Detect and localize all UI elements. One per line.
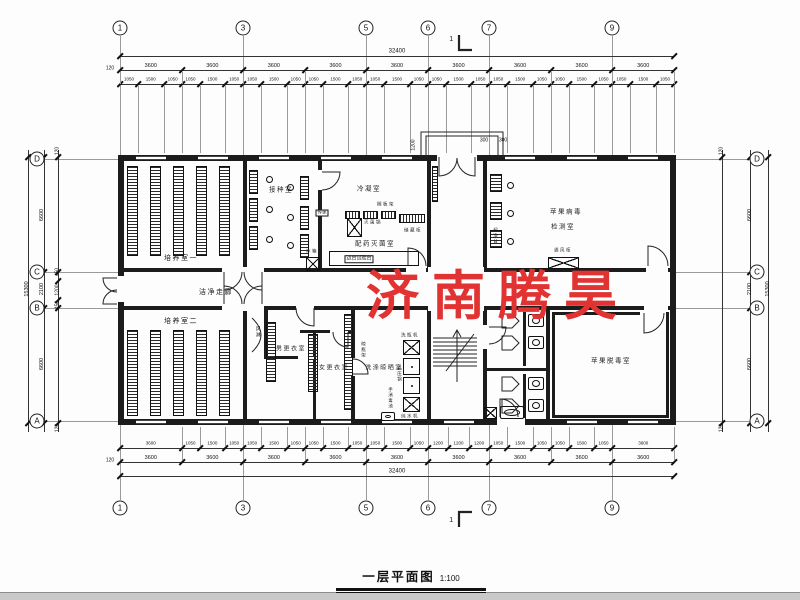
title-block: 一层平面图1:100 [336,566,486,593]
title-underline-thin [336,592,486,593]
plan-path [353,359,368,374]
plan-path [502,399,519,413]
plan-path [648,246,668,266]
drawing-title: 一层平面图 [362,570,435,584]
plan-path [426,136,498,158]
drawing-scale: 1:100 [440,574,460,583]
plan-path [296,308,314,326]
plan-path [644,313,664,333]
plan-path [457,157,475,176]
title-underline-thick [336,588,486,591]
plan-path [459,512,472,527]
plan-path [252,318,261,352]
plan-path [502,336,519,350]
plan-path [433,338,477,366]
plan-path [224,272,242,290]
plan-path [244,286,262,304]
plan-path [502,377,519,391]
plan-path [224,286,242,304]
plan-path [333,332,348,347]
plan-path [244,272,262,290]
plan-path [459,35,472,50]
plan-path [446,334,474,371]
watermark-text: 济南腾昊 [366,254,630,330]
floor-plan-canvas: 3240036003600360036003600360036003600360… [0,0,800,600]
plan-path [439,157,457,176]
plan-path [322,172,340,190]
